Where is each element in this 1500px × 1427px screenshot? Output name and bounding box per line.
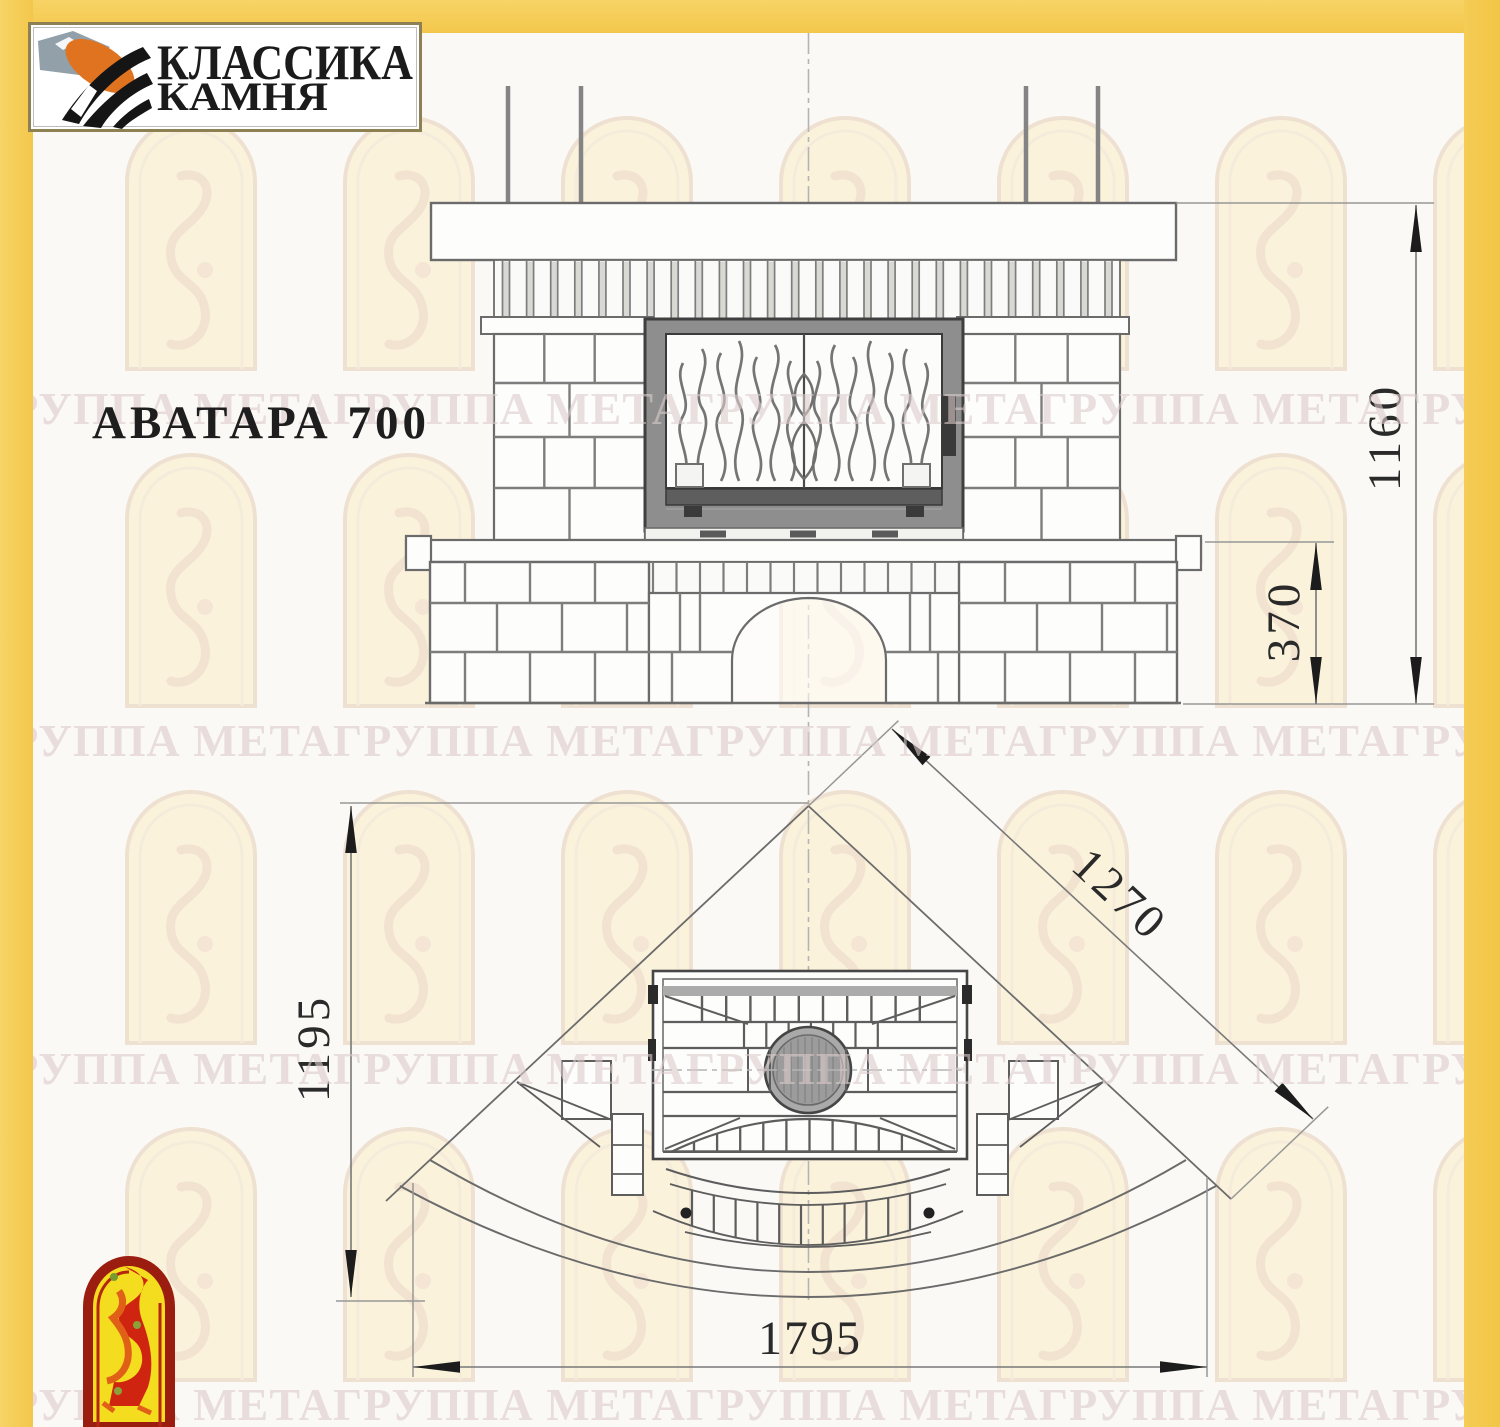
svg-text:ГРУППА МЕТАГРУППА МЕТАГРУППА М: ГРУППА МЕТАГРУППА МЕТАГРУППА МЕТАГРУППА … <box>0 715 1500 766</box>
svg-text:ГРУППА МЕТАГРУППА МЕТАГРУППА М: ГРУППА МЕТАГРУППА МЕТАГРУППА МЕТАГРУППА … <box>0 1043 1500 1094</box>
svg-text:ГРУППА МЕТАГРУППА МЕТАГРУППА М: ГРУППА МЕТАГРУППА МЕТАГРУППА МЕТАГРУППА … <box>0 1379 1500 1427</box>
svg-text:КАМНЯ: КАМНЯ <box>157 74 328 119</box>
